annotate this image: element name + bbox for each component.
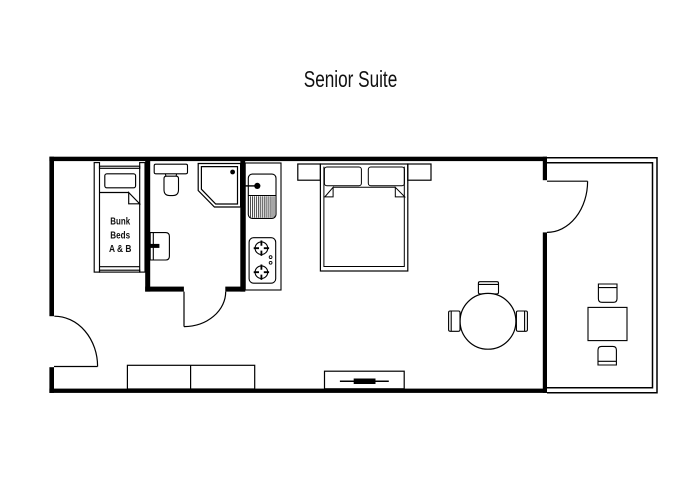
svg-text:Bunk: Bunk bbox=[110, 217, 130, 228]
svg-text:A & B: A & B bbox=[109, 244, 132, 255]
svg-text:Beds: Beds bbox=[110, 230, 130, 241]
svg-text:Senior Suite: Senior Suite bbox=[304, 66, 398, 92]
